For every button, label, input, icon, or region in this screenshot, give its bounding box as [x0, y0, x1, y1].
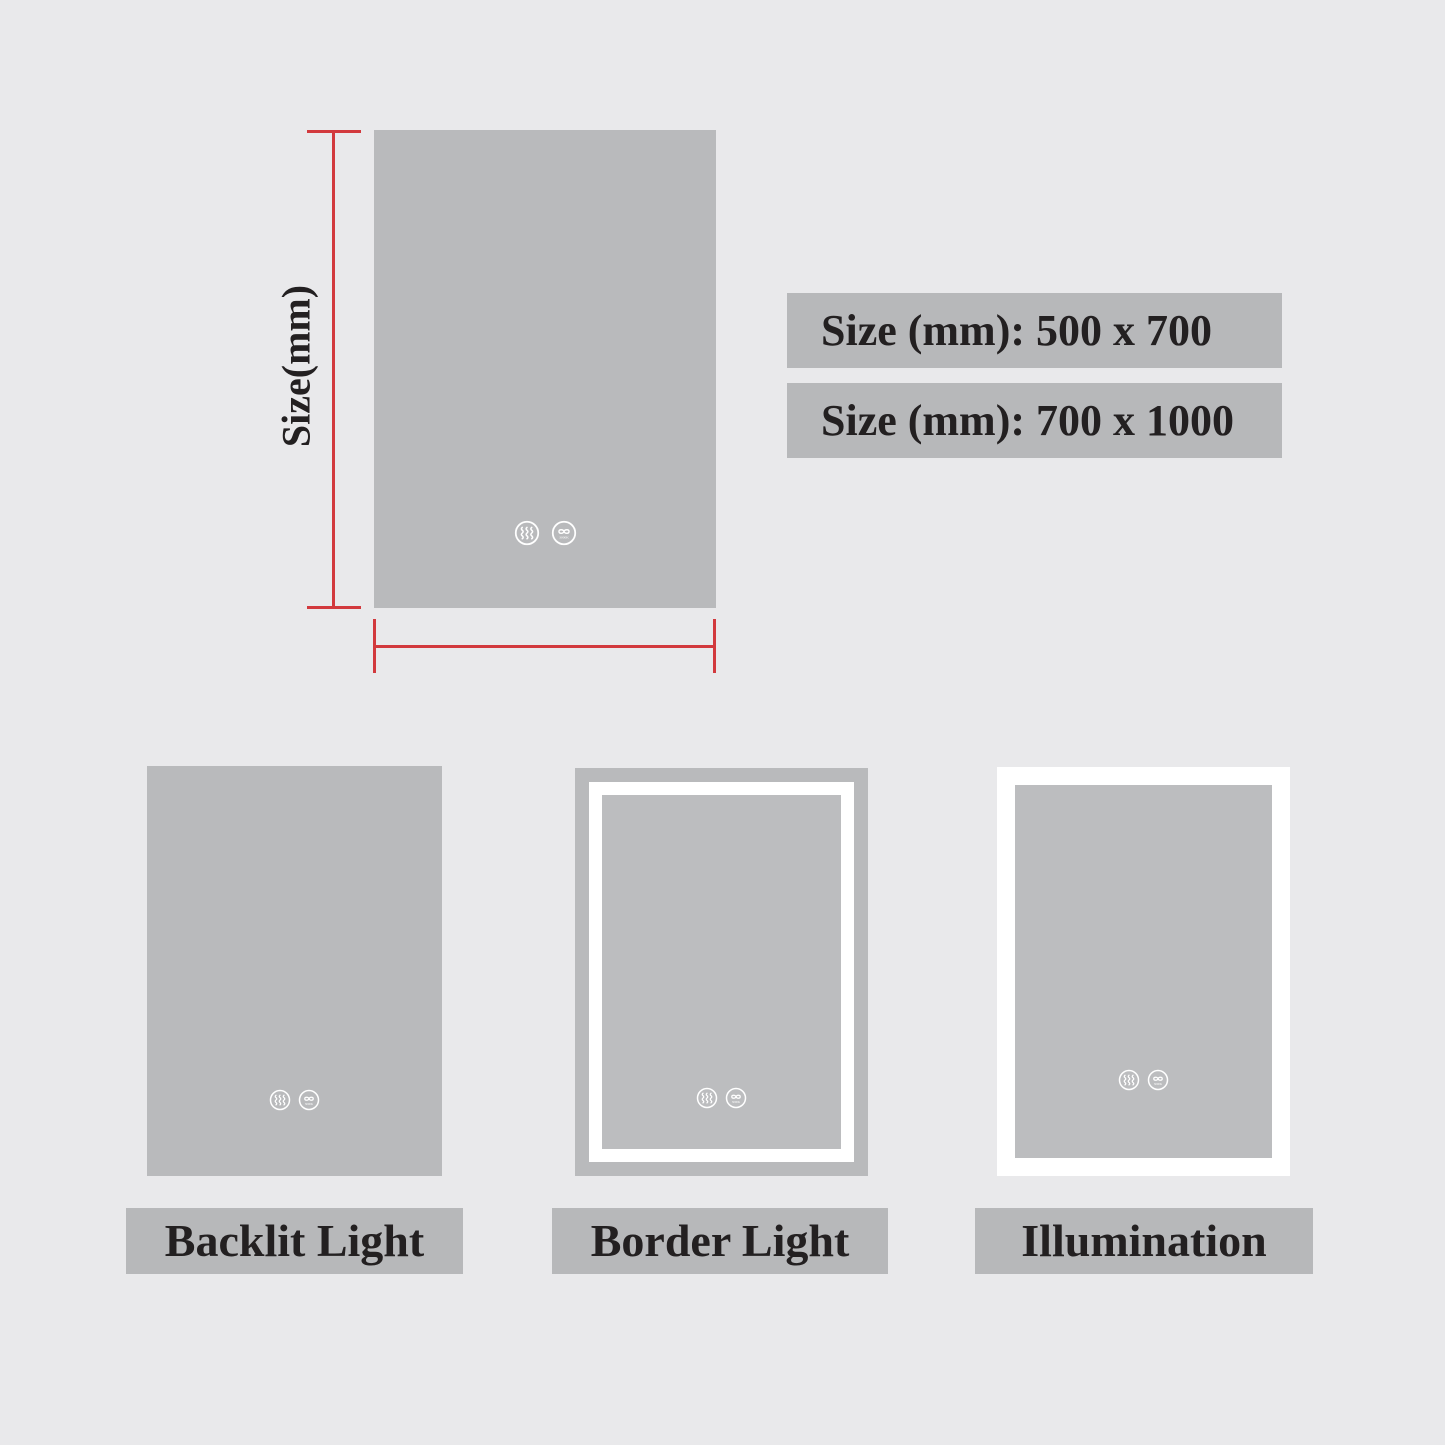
variant-border-mirror: 3000K: [575, 768, 868, 1176]
size-axis-label: Size(mm): [273, 285, 320, 447]
variant-border-label: Border Light: [552, 1208, 888, 1274]
touch-sensor-icons: 3000K: [147, 1089, 442, 1111]
defogger-icon: [514, 520, 540, 546]
color-temperature-icon: 3000K: [551, 520, 577, 546]
vertical-dimension-line: [332, 131, 335, 609]
vertical-dimension-top-tick: [307, 130, 361, 133]
mirror-surface: [1015, 785, 1272, 1158]
color-temperature-icon: 3000K: [1147, 1069, 1169, 1091]
horizontal-dimension-left-tick: [373, 619, 376, 673]
horizontal-dimension-right-tick: [713, 619, 716, 673]
defogger-icon: [696, 1087, 718, 1109]
defogger-icon: [269, 1089, 291, 1111]
touch-sensor-icons: 3000K: [575, 1087, 868, 1109]
color-temperature-caption: 3000K: [305, 1102, 314, 1106]
variant-backlit-label: Backlit Light: [126, 1208, 463, 1274]
vertical-dimension-bottom-tick: [307, 606, 361, 609]
touch-sensor-icons: 3000K: [997, 1069, 1290, 1091]
size-option-2: Size (mm): 700 x 1000: [787, 383, 1282, 458]
horizontal-dimension-line: [374, 645, 716, 648]
variant-illumination-mirror: 3000K: [997, 767, 1290, 1176]
product-infographic: 3000K Size(mm) Size (mm): 500 x 700 Size…: [0, 0, 1445, 1445]
color-temperature-caption: 3000K: [732, 1100, 741, 1104]
color-temperature-caption: 3000K: [559, 536, 569, 540]
mirror-size-diagram-panel: 3000K: [374, 130, 716, 608]
variant-illumination-label: Illumination: [975, 1208, 1313, 1274]
variant-backlit-mirror: 3000K: [147, 766, 442, 1176]
color-temperature-icon: 3000K: [725, 1087, 747, 1109]
defogger-icon: [1118, 1069, 1140, 1091]
touch-sensor-icons: 3000K: [374, 520, 716, 546]
size-option-1: Size (mm): 500 x 700: [787, 293, 1282, 368]
color-temperature-caption: 3000K: [1154, 1082, 1163, 1086]
color-temperature-icon: 3000K: [298, 1089, 320, 1111]
